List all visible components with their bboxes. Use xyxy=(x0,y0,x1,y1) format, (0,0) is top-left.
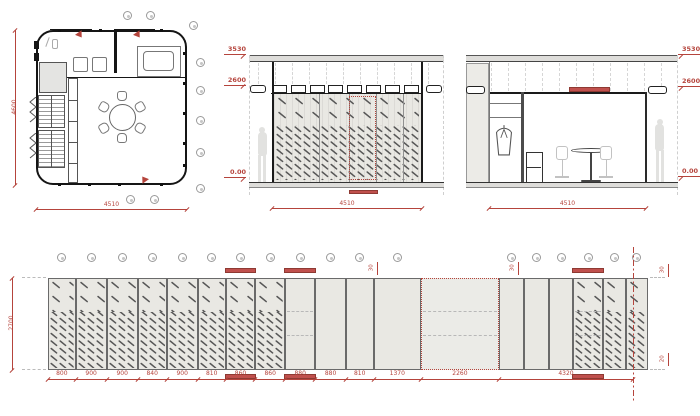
dimension-label: 900 xyxy=(166,371,198,377)
dimension-label: 880 xyxy=(284,371,316,377)
dimension-label: 810 xyxy=(344,371,376,377)
grid-bubble xyxy=(393,253,402,262)
grid-bubble xyxy=(266,253,275,262)
grid-bubble-mark xyxy=(91,257,94,260)
drawing-sheet: 46004510 353026000.004510 353026000.0045… xyxy=(0,0,700,416)
edge-dashed-stub xyxy=(650,277,665,278)
edge-dashed-stub xyxy=(650,369,665,370)
hatch-marks xyxy=(628,280,646,368)
grid-bubble xyxy=(557,253,566,262)
dimension-label: 810 xyxy=(196,371,228,377)
grid-bubble-mark xyxy=(152,257,155,260)
grid-bubble-mark xyxy=(240,257,243,260)
dimension-label: 900 xyxy=(106,371,138,377)
glass-panel xyxy=(374,278,421,370)
panel-rail xyxy=(287,335,313,336)
hatch-marks xyxy=(605,280,623,368)
hatch-marks xyxy=(109,280,136,368)
grid-bubble-mark xyxy=(211,257,214,260)
edge-dashed-stub xyxy=(22,277,46,278)
glass-panel xyxy=(524,278,549,370)
grid-bubble-mark xyxy=(330,257,333,260)
offset-dim-tick xyxy=(668,353,669,366)
glass-panel xyxy=(549,278,574,370)
offset-dim-tick xyxy=(668,264,669,277)
grid-bubble xyxy=(87,253,96,262)
module-break-line xyxy=(633,247,634,403)
grid-bubble-mark xyxy=(561,257,564,260)
grid-bubble-mark xyxy=(61,257,64,260)
dim-label: 2700 xyxy=(9,306,15,340)
grid-bubble-mark xyxy=(588,257,591,260)
grid-bubble xyxy=(118,253,127,262)
dimension-label: 840 xyxy=(136,371,168,377)
dimension-label: 2260 xyxy=(444,371,476,377)
edge-dashed-stub xyxy=(22,369,46,370)
offset-dim-label: 30 xyxy=(660,264,666,276)
grid-bubble xyxy=(355,253,364,262)
red-accent-bar xyxy=(572,268,604,273)
grid-bubble xyxy=(532,253,541,262)
dimension-label: 900 xyxy=(75,371,107,377)
offset-dim-label: 30 xyxy=(510,262,516,274)
offset-dim-label: 30 xyxy=(369,262,375,274)
offset-dim-label: 20 xyxy=(660,353,666,365)
grid-bubble-mark xyxy=(536,257,539,260)
dimension-label: 4320 xyxy=(550,371,582,377)
panel-rail xyxy=(575,311,601,312)
dimension-label: 1370 xyxy=(381,371,413,377)
offset-dim-tick xyxy=(518,262,519,275)
grid-bubble xyxy=(610,253,619,262)
hatch-marks xyxy=(78,280,105,368)
grid-bubble xyxy=(148,253,157,262)
panel-rail xyxy=(423,335,497,336)
offset-dim-tick xyxy=(377,262,378,275)
dim-tick xyxy=(10,368,15,373)
dimension-label: 860 xyxy=(225,371,257,377)
grid-bubble-mark xyxy=(511,257,514,260)
grid-bubble-mark xyxy=(122,257,125,260)
glass-panel xyxy=(285,278,315,370)
dimension-label: 800 xyxy=(46,371,78,377)
grid-bubble-mark xyxy=(300,257,303,260)
grid-bubble-mark xyxy=(270,257,273,260)
glass-panel xyxy=(346,278,374,370)
grid-bubble-mark xyxy=(614,257,617,260)
hatch-marks xyxy=(228,280,254,368)
grid-bubble xyxy=(207,253,216,262)
grid-bubble-mark xyxy=(397,257,400,260)
glass-panel xyxy=(315,278,345,370)
grid-bubble-mark xyxy=(182,257,185,260)
grid-bubble xyxy=(178,253,187,262)
panel-rail xyxy=(575,335,601,336)
grid-bubble xyxy=(296,253,305,262)
hatch-marks xyxy=(50,280,74,368)
hatch-marks xyxy=(257,280,283,368)
grid-bubble-mark xyxy=(636,257,639,260)
grid-bubble-mark xyxy=(359,257,362,260)
hatch-marks xyxy=(575,280,601,368)
hatch-marks xyxy=(169,280,196,368)
red-accent-bar xyxy=(225,268,257,273)
hatch-marks xyxy=(200,280,224,368)
grid-bubble xyxy=(57,253,66,262)
hatch-marks xyxy=(140,280,165,368)
grid-bubble xyxy=(236,253,245,262)
dimension-label: 880 xyxy=(315,371,347,377)
dimension-label: 860 xyxy=(254,371,286,377)
glazing-elevation: 8009009008409008108608608808808101370226… xyxy=(0,0,700,416)
grid-bubble xyxy=(584,253,593,262)
panel-rail xyxy=(287,311,313,312)
red-accent-bar xyxy=(284,268,316,273)
grid-bubble xyxy=(326,253,335,262)
panel-rail xyxy=(423,311,497,312)
opening-dotted-panel xyxy=(421,278,499,370)
glass-panel xyxy=(499,278,524,370)
grid-bubble xyxy=(507,253,516,262)
